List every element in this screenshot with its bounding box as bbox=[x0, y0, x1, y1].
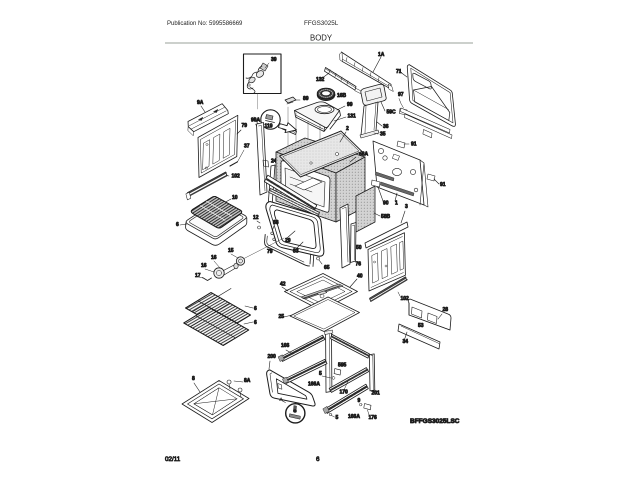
svg-text:91: 91 bbox=[411, 142, 417, 148]
svg-text:3: 3 bbox=[405, 204, 408, 210]
svg-text:58B: 58B bbox=[381, 214, 391, 220]
svg-text:6: 6 bbox=[176, 222, 179, 228]
svg-text:91: 91 bbox=[440, 182, 446, 188]
svg-text:BODY: BODY bbox=[310, 34, 333, 43]
svg-text:170: 170 bbox=[340, 390, 349, 396]
svg-text:16B: 16B bbox=[337, 93, 347, 99]
svg-text:166A: 166A bbox=[348, 414, 360, 420]
svg-text:FFGS3025L: FFGS3025L bbox=[304, 20, 339, 27]
svg-text:79: 79 bbox=[242, 123, 248, 129]
svg-text:2: 2 bbox=[346, 126, 349, 132]
svg-text:5: 5 bbox=[336, 415, 339, 421]
svg-text:166: 166 bbox=[281, 343, 290, 349]
svg-text:59C: 59C bbox=[387, 110, 397, 116]
svg-text:6: 6 bbox=[254, 306, 257, 312]
svg-text:1: 1 bbox=[395, 201, 398, 207]
svg-text:76: 76 bbox=[356, 262, 362, 268]
svg-text:166A: 166A bbox=[308, 382, 320, 388]
svg-text:35: 35 bbox=[380, 132, 386, 138]
svg-text:71: 71 bbox=[396, 69, 402, 75]
svg-text:8A: 8A bbox=[244, 378, 251, 384]
svg-text:1A: 1A bbox=[378, 52, 385, 58]
svg-text:15: 15 bbox=[228, 248, 234, 254]
svg-text:10: 10 bbox=[232, 195, 238, 201]
svg-text:02/11: 02/11 bbox=[165, 456, 181, 463]
svg-text:16: 16 bbox=[201, 263, 207, 269]
svg-text:9: 9 bbox=[358, 398, 361, 404]
svg-text:132: 132 bbox=[316, 77, 325, 83]
svg-text:6: 6 bbox=[316, 456, 320, 463]
svg-text:12: 12 bbox=[253, 215, 259, 221]
svg-text:42: 42 bbox=[280, 282, 286, 288]
svg-text:34: 34 bbox=[403, 339, 409, 345]
svg-text:8: 8 bbox=[192, 376, 195, 382]
svg-text:50: 50 bbox=[356, 245, 362, 251]
svg-text:90: 90 bbox=[383, 201, 389, 207]
svg-text:40: 40 bbox=[357, 274, 363, 280]
svg-text:9A: 9A bbox=[197, 100, 204, 106]
svg-text:17: 17 bbox=[195, 273, 201, 279]
svg-text:37: 37 bbox=[244, 144, 250, 150]
svg-text:102: 102 bbox=[232, 174, 241, 180]
svg-text:BFFGS3025LSC: BFFGS3025LSC bbox=[410, 418, 460, 425]
svg-text:6: 6 bbox=[254, 320, 257, 326]
svg-text:131: 131 bbox=[348, 114, 357, 120]
svg-text:28: 28 bbox=[443, 307, 449, 313]
svg-text:200: 200 bbox=[268, 354, 277, 360]
svg-text:65: 65 bbox=[324, 265, 330, 271]
svg-text:97: 97 bbox=[398, 92, 404, 98]
svg-text:102: 102 bbox=[401, 296, 410, 302]
svg-text:119: 119 bbox=[265, 124, 273, 130]
svg-text:16: 16 bbox=[211, 255, 217, 261]
svg-text:29: 29 bbox=[285, 238, 291, 244]
svg-text:53: 53 bbox=[418, 323, 424, 329]
svg-text:Publication No: 5995586669: Publication No: 5995586669 bbox=[167, 21, 243, 27]
svg-text:595: 595 bbox=[338, 363, 347, 369]
svg-text:89: 89 bbox=[303, 96, 309, 102]
svg-text:99: 99 bbox=[347, 102, 353, 108]
svg-text:36: 36 bbox=[383, 124, 389, 130]
svg-text:83: 83 bbox=[293, 249, 299, 255]
svg-text:88: 88 bbox=[273, 220, 279, 226]
svg-text:5: 5 bbox=[319, 371, 322, 377]
svg-text:201: 201 bbox=[372, 391, 381, 397]
svg-text:79: 79 bbox=[267, 249, 273, 255]
svg-text:176: 176 bbox=[369, 415, 378, 421]
svg-text:39: 39 bbox=[271, 57, 277, 63]
